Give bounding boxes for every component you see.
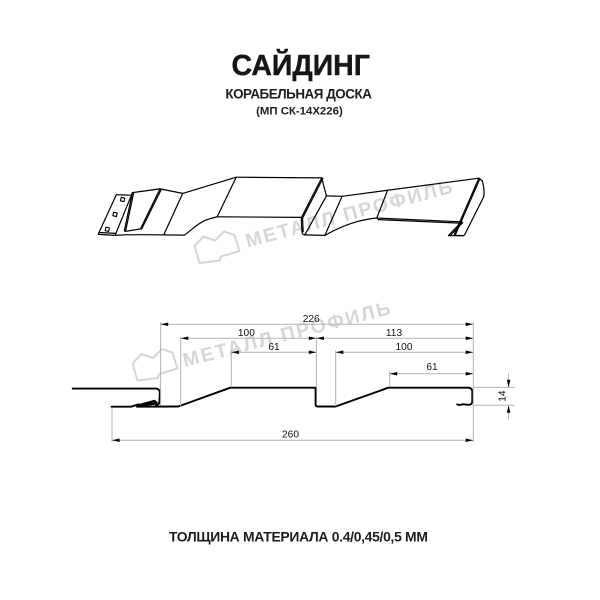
svg-text:14: 14 [498, 390, 509, 402]
svg-text:226: 226 [303, 314, 320, 325]
svg-text:100: 100 [396, 342, 413, 353]
svg-text:(МП СК-14Х226): (МП СК-14Х226) [256, 106, 343, 118]
svg-text:КОРАБЕЛЬНАЯ ДОСКА: КОРАБЕЛЬНАЯ ДОСКА [225, 87, 372, 102]
svg-text:ТОЛЩИНА МАТЕРИАЛА 0.4/0,45/0,5: ТОЛЩИНА МАТЕРИАЛА 0.4/0,45/0,5 ММ [169, 528, 428, 544]
svg-text:МЕТАЛЛ ПРОФИЛЬ: МЕТАЛЛ ПРОФИЛЬ [243, 175, 457, 252]
svg-text:МЕТАЛЛ ПРОФИЛЬ: МЕТАЛЛ ПРОФИЛЬ [181, 297, 395, 372]
svg-text:61: 61 [268, 342, 280, 353]
svg-text:260: 260 [282, 430, 299, 441]
svg-text:113: 113 [386, 328, 403, 339]
svg-text:100: 100 [238, 328, 255, 339]
svg-text:61: 61 [426, 362, 438, 373]
svg-text:САЙДИНГ: САЙДИНГ [231, 49, 369, 82]
